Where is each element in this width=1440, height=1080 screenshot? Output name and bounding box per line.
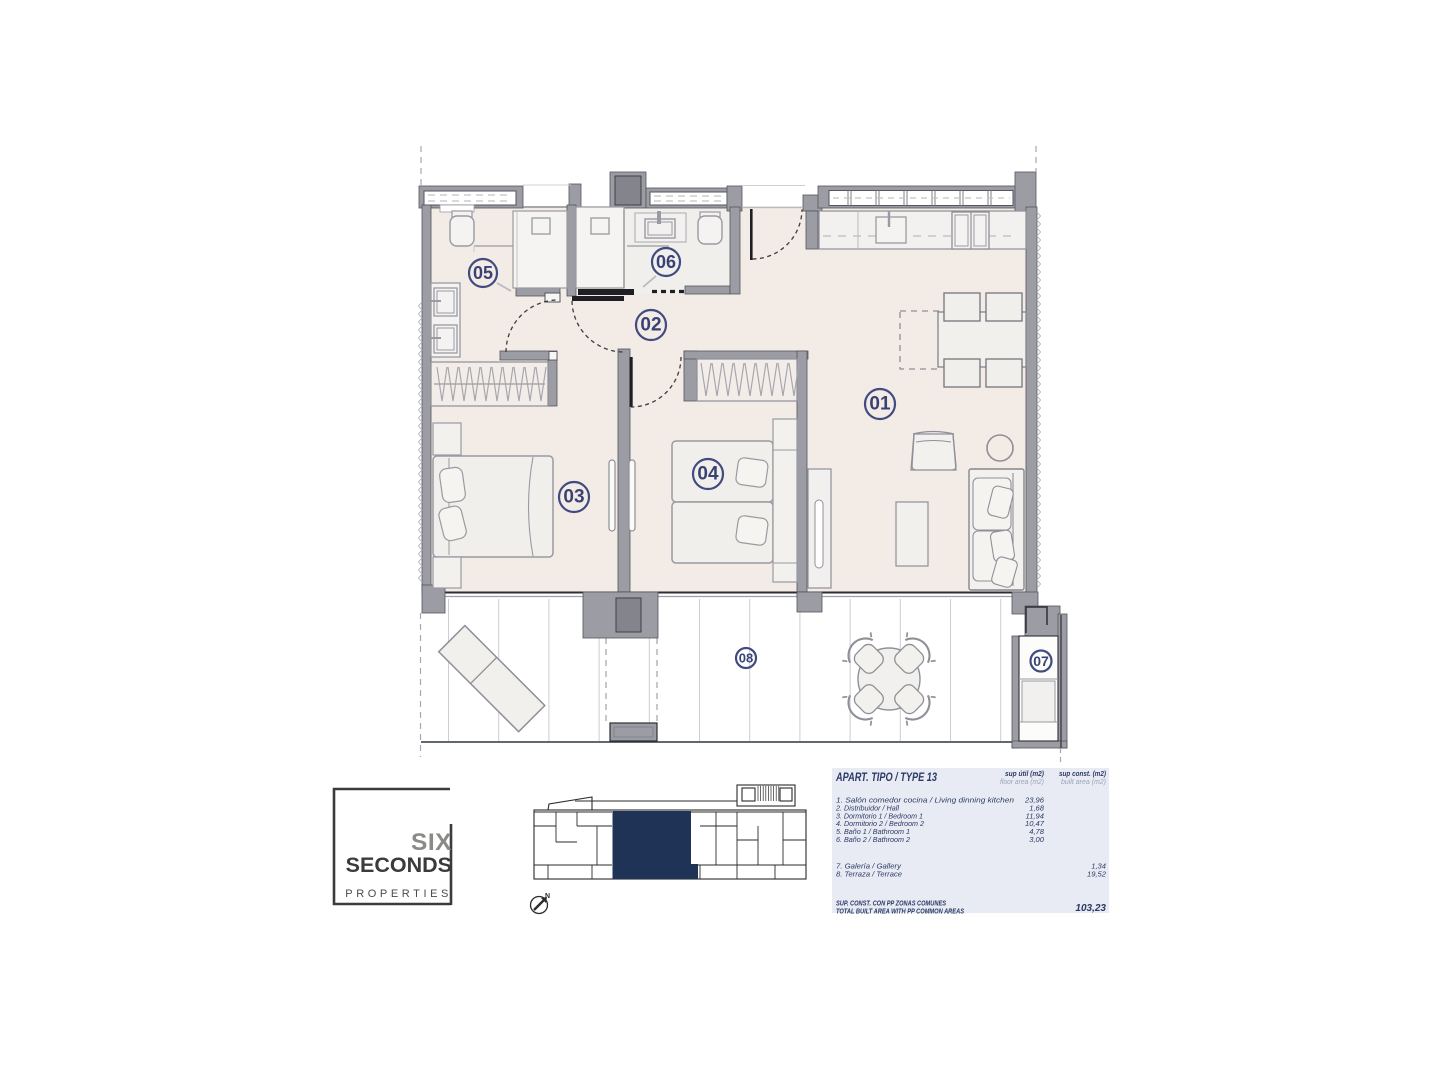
svg-text:08: 08 bbox=[739, 651, 753, 666]
svg-text:built area (m2): built area (m2) bbox=[1061, 779, 1106, 786]
svg-text:SIX: SIX bbox=[411, 829, 452, 856]
svg-text:103,23: 103,23 bbox=[1075, 903, 1106, 914]
svg-text:07: 07 bbox=[1033, 653, 1049, 669]
svg-text:8. Terraza / Terrace: 8. Terraza / Terrace bbox=[836, 870, 902, 879]
svg-text:TOTAL BUILT AREA WITH PP COMMO: TOTAL BUILT AREA WITH PP COMMON AREAS bbox=[836, 906, 964, 915]
svg-text:03: 03 bbox=[563, 487, 584, 508]
svg-text:04: 04 bbox=[697, 464, 719, 485]
svg-text:6. Baño 2 / Bathroom 2: 6. Baño 2 / Bathroom 2 bbox=[836, 835, 911, 844]
svg-text:APART. TIPO / TYPE 13: APART. TIPO / TYPE 13 bbox=[835, 772, 937, 784]
svg-text:01: 01 bbox=[869, 394, 891, 415]
svg-text:sup útil (m2): sup útil (m2) bbox=[1005, 771, 1045, 778]
svg-text:3,00: 3,00 bbox=[1029, 835, 1045, 844]
svg-text:02: 02 bbox=[640, 315, 661, 336]
svg-text:SECONDS: SECONDS bbox=[346, 853, 452, 877]
svg-text:PROPERTIES: PROPERTIES bbox=[345, 888, 452, 900]
svg-text:sup const. (m2): sup const. (m2) bbox=[1059, 771, 1107, 778]
svg-text:19,52: 19,52 bbox=[1087, 870, 1107, 879]
svg-text:06: 06 bbox=[656, 252, 676, 272]
svg-text:05: 05 bbox=[473, 263, 493, 283]
svg-text:N: N bbox=[545, 893, 550, 900]
svg-text:floor area (m2): floor area (m2) bbox=[1000, 779, 1044, 786]
